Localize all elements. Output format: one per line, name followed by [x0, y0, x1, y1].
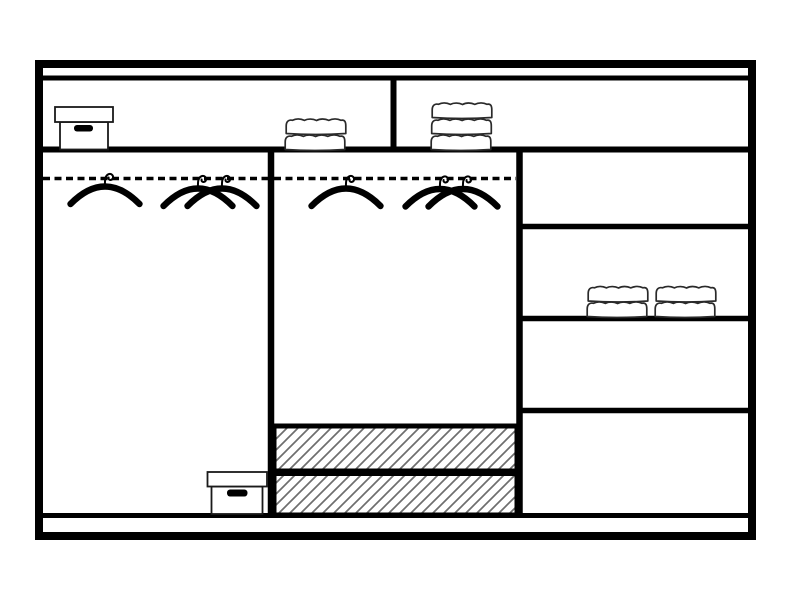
- towel-layer: [286, 119, 346, 134]
- towel-layer: [588, 286, 648, 301]
- towel-stack-top-left: [285, 119, 346, 150]
- storage-box-bottom: [208, 472, 268, 514]
- towel-layer: [285, 135, 345, 150]
- towel-layer: [432, 119, 492, 134]
- box-handle: [227, 490, 248, 497]
- towel-layer: [656, 286, 716, 301]
- wardrobe-diagram-svg: [0, 0, 800, 600]
- box-handle: [74, 125, 93, 132]
- towel-layer: [431, 135, 491, 150]
- box-lid: [55, 107, 113, 122]
- drawer-1-hatched: [274, 426, 517, 471]
- towel-layer: [655, 302, 715, 317]
- towel-layer: [587, 302, 647, 317]
- towel-stack-right-1: [587, 286, 648, 317]
- wardrobe-diagram: [0, 0, 800, 600]
- towel-stack-top-right: [431, 103, 492, 150]
- drawer-2-hatched: [274, 474, 517, 516]
- towel-layer: [432, 103, 492, 118]
- towel-stack-right-2: [655, 286, 716, 317]
- box-lid: [208, 472, 268, 487]
- storage-box-top: [55, 107, 113, 150]
